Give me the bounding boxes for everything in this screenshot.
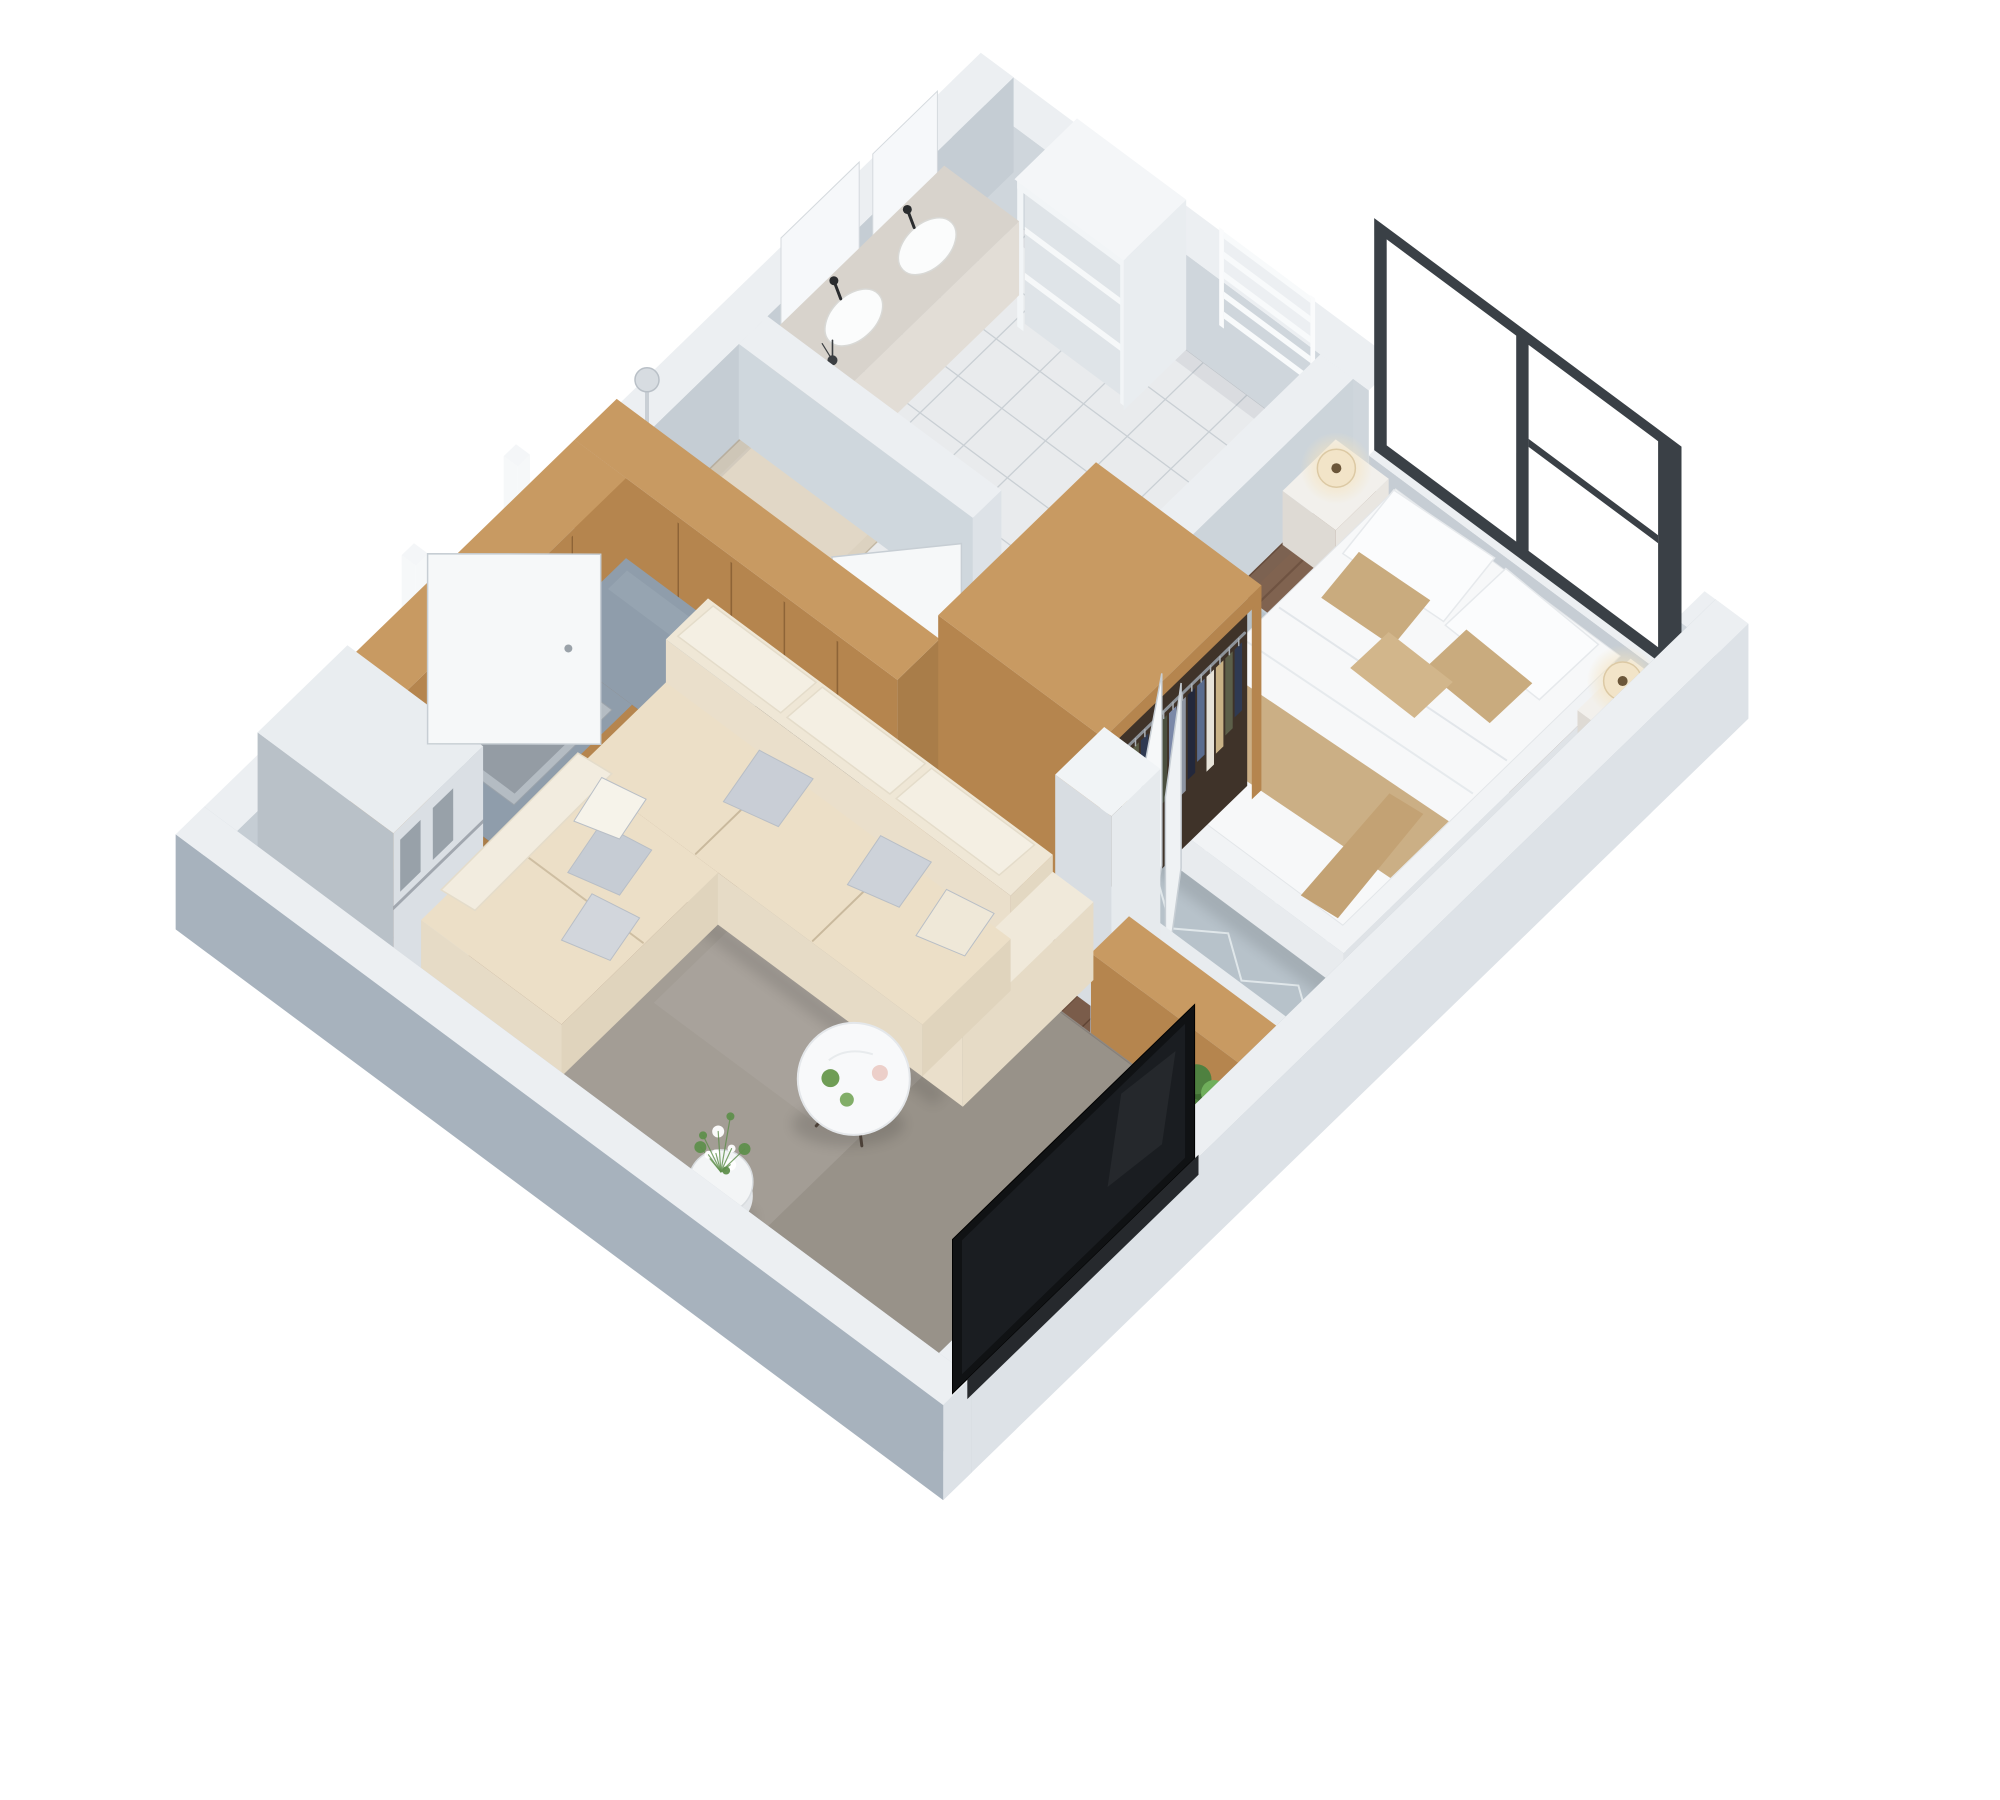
floor-plan-3d-render bbox=[0, 0, 2000, 1800]
entrance-door bbox=[428, 554, 601, 745]
table-lamp-left bbox=[1300, 432, 1372, 504]
floor-plan-page: 3D isometric floor plan render — one-bed… bbox=[0, 0, 2000, 1800]
